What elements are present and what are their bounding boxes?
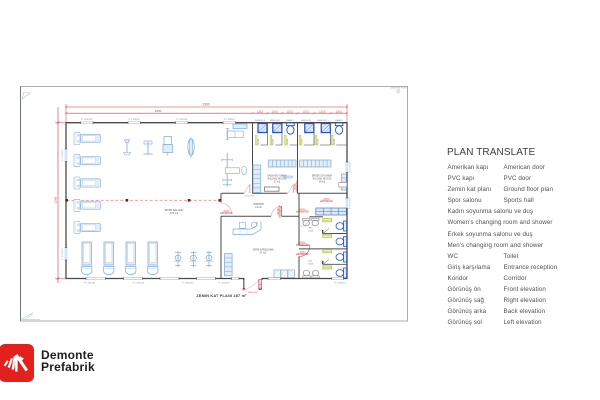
svg-text:120,5: 120,5 [303, 110, 310, 113]
svg-text:3 m2: 3 m2 [308, 264, 314, 266]
svg-text:12 m2: 12 m2 [255, 207, 262, 209]
svg-text:174 m2: 174 m2 [170, 211, 179, 215]
svg-text:4600: 4600 [155, 109, 162, 113]
svg-text:120,5: 120,5 [319, 110, 326, 113]
svg-text:P. 170X110: P. 170X110 [176, 119, 188, 121]
svg-text:90X210 PVC: 90X210 PVC [248, 292, 259, 294]
svg-text:P. 170X110: P. 170X110 [62, 149, 64, 161]
svg-text:P. 170X110: P. 170X110 [219, 282, 231, 284]
svg-text:70X200: 70X200 [287, 139, 289, 146]
svg-text:P. 170X110: P. 170X110 [335, 282, 347, 284]
svg-text:AMERIKAN KAPI: AMERIKAN KAPI [296, 253, 310, 256]
svg-text:3 m2: 3 m2 [308, 231, 314, 233]
svg-text:SALONU VE DUS: SALONU VE DUS [313, 178, 332, 181]
svg-text:70X200: 70X200 [317, 139, 319, 146]
svg-text:70X200: 70X200 [334, 139, 336, 146]
svg-text:P. 170X110: P. 170X110 [182, 282, 194, 284]
svg-text:AMERIKAN KAPI: AMERIKAN KAPI [296, 211, 310, 214]
svg-text:P. 170X110: P. 170X110 [81, 119, 93, 121]
svg-text:ZEMIN KAT PLANI 287 m²: ZEMIN KAT PLANI 287 m² [196, 294, 247, 298]
svg-text:AMERIKAN KAPI: AMERIKAN KAPI [320, 200, 334, 203]
svg-text:27 m2: 27 m2 [274, 182, 281, 184]
svg-text:WC: WC [309, 261, 313, 263]
svg-text:P. 170X110: P. 170X110 [349, 197, 351, 209]
svg-text:P. 170X110: P. 170X110 [133, 282, 145, 284]
svg-text:KORIDOR: KORIDOR [253, 204, 264, 206]
svg-text:AMERIKAN KAPI: AMERIKAN KAPI [279, 204, 282, 218]
svg-text:2300: 2300 [202, 103, 209, 107]
svg-text:LAVABO: LAVABO [335, 119, 343, 122]
svg-text:28 m2: 28 m2 [319, 182, 326, 184]
svg-text:P. 170X110: P. 170X110 [84, 282, 96, 284]
svg-text:70X200: 70X200 [273, 139, 275, 146]
svg-text:AMERIKAN KAPI: AMERIKAN KAPI [220, 212, 234, 215]
svg-text:1250: 1250 [54, 196, 58, 203]
svg-text:AMERIKAN KAPI: AMERIKAN KAPI [296, 179, 299, 193]
svg-text:80X80 DUS: 80X80 DUS [270, 120, 281, 122]
svg-text:80X80 DUS: 80X80 DUS [255, 120, 266, 122]
svg-text:120,5: 120,5 [272, 110, 279, 113]
svg-text:SALONU VE DUS: SALONU VE DUS [268, 178, 287, 181]
svg-text:80X80 DUS: 80X80 DUS [317, 120, 328, 122]
svg-text:KADIN SOYUNMA: KADIN SOYUNMA [267, 175, 287, 178]
svg-text:120,5: 120,5 [336, 110, 343, 113]
svg-text:P. 170X110: P. 170X110 [129, 119, 141, 121]
svg-text:120,5: 120,5 [287, 110, 294, 113]
svg-text:ZEMIN KAT PLANI: ZEMIN KAT PLANI [391, 86, 407, 89]
svg-text:90X210 PVC: 90X210 PVC [245, 195, 256, 197]
svg-text:80X80 DUS: 80X80 DUS [301, 120, 312, 122]
svg-text:ERKEK SOYUNMA: ERKEK SOYUNMA [312, 175, 333, 178]
svg-text:70X200: 70X200 [258, 139, 260, 146]
svg-text:LAVABO: LAVABO [286, 119, 294, 122]
svg-text:P. 170X110: P. 170X110 [224, 119, 236, 121]
svg-text:P. 170X110: P. 170X110 [62, 248, 64, 260]
svg-text:21 m2: 21 m2 [260, 252, 267, 255]
svg-text:WC: WC [309, 228, 313, 230]
svg-text:70X200: 70X200 [302, 139, 304, 146]
svg-text:P. 170X110: P. 170X110 [349, 161, 351, 173]
svg-text:AMERIKAN KAPI: AMERIKAN KAPI [296, 244, 310, 247]
svg-text:120,5: 120,5 [257, 110, 264, 113]
